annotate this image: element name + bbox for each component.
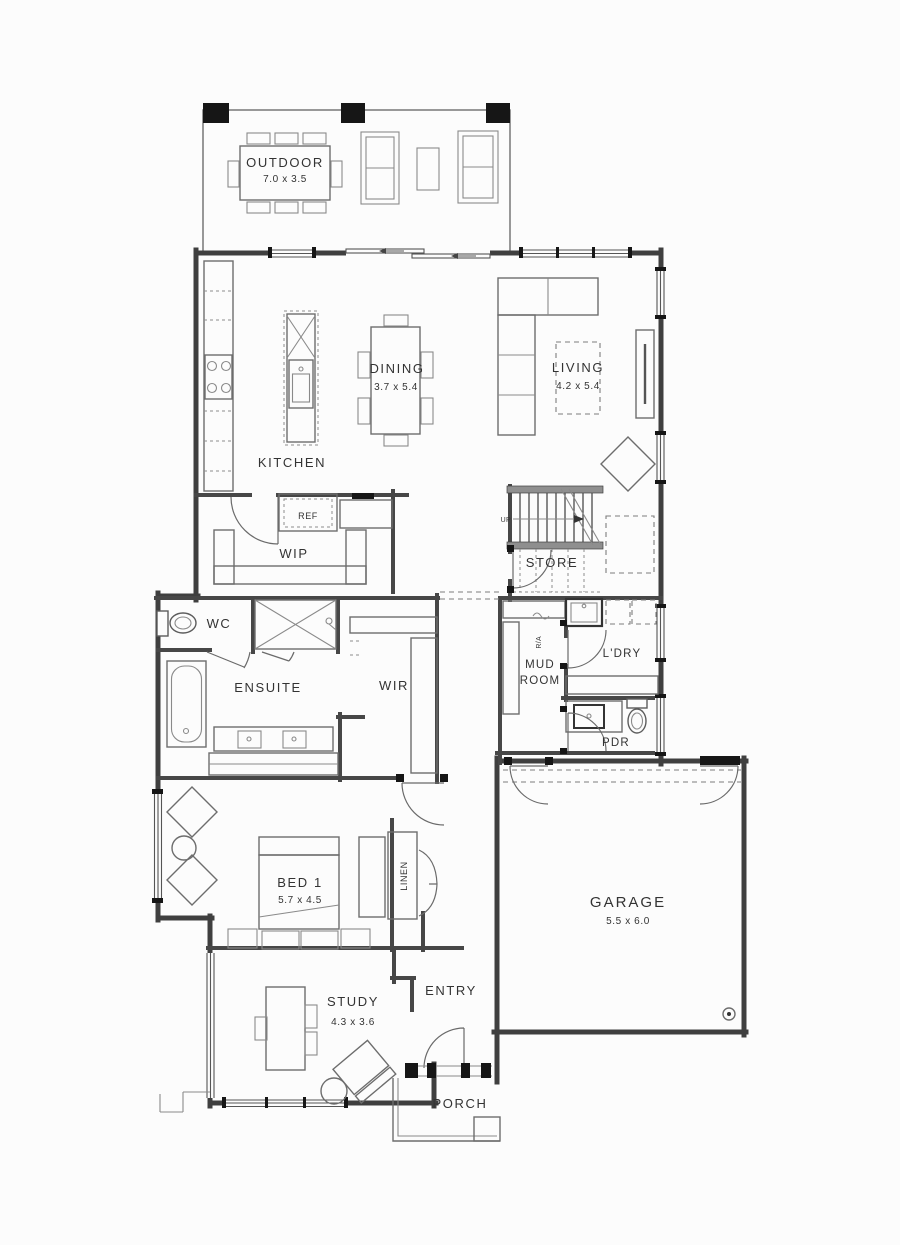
room-dims-living: 4.2 x 5.4 bbox=[556, 381, 600, 392]
wir-cabinet bbox=[411, 638, 437, 773]
label-up: UP bbox=[501, 517, 511, 524]
shower bbox=[255, 600, 336, 649]
laundry-appliance bbox=[606, 600, 630, 624]
porch-pier bbox=[474, 1117, 500, 1141]
hall-area: LINEN bbox=[359, 832, 437, 919]
entry-area: ENTRY bbox=[405, 983, 492, 1078]
occasional-chair bbox=[601, 437, 655, 491]
side-table bbox=[172, 836, 196, 860]
laundry-area: L'DRY bbox=[560, 599, 658, 694]
interior-walls bbox=[156, 486, 661, 1010]
window-bed1 bbox=[152, 789, 163, 903]
room-label-garage: GARAGE bbox=[590, 894, 666, 911]
toilet-cistern bbox=[157, 611, 168, 636]
wip-bench bbox=[214, 566, 366, 584]
bed bbox=[228, 837, 370, 949]
study-area: STUDY 4.3 x 3.6 bbox=[255, 987, 396, 1104]
bedside-table bbox=[341, 929, 370, 948]
study-desk bbox=[266, 987, 305, 1070]
garage-area: GARAGE 5.5 x 6.0 bbox=[503, 756, 741, 1020]
label-linen: LINEN bbox=[399, 861, 409, 891]
sectional-sofa bbox=[498, 278, 598, 435]
porch-post bbox=[481, 1063, 491, 1078]
kitchen-bench bbox=[204, 261, 233, 491]
mudroom-area: R/A MUD ROOM bbox=[503, 601, 565, 714]
room-label-room: ROOM bbox=[520, 675, 561, 687]
hall-bulkhead-opening bbox=[440, 592, 500, 599]
robe-cabinet-strip bbox=[209, 753, 338, 775]
bedroom-chair bbox=[167, 787, 217, 837]
porch-post bbox=[405, 1063, 418, 1078]
toilet-bowl bbox=[170, 613, 196, 633]
room-dims-study: 4.3 x 3.6 bbox=[331, 1017, 375, 1028]
room-label-wc: WC bbox=[207, 616, 232, 631]
kitchen-area: KITCHEN bbox=[204, 261, 326, 491]
window-top-living bbox=[519, 247, 632, 258]
stairs: UP bbox=[501, 486, 603, 549]
cooktop bbox=[205, 355, 232, 399]
window-laundry bbox=[655, 604, 666, 662]
landscape-steps bbox=[160, 1092, 210, 1112]
room-label-dining: DINING bbox=[369, 361, 424, 376]
outdoor-sofas bbox=[361, 131, 498, 204]
room-label-store: STORE bbox=[526, 555, 579, 570]
porch-post bbox=[427, 1063, 436, 1078]
wc-area: WC bbox=[157, 611, 250, 668]
study-armchair bbox=[333, 1040, 396, 1103]
linen-doors bbox=[419, 850, 437, 916]
hall-cabinet bbox=[359, 837, 385, 917]
room-label-wir: WIR bbox=[379, 678, 409, 693]
pdr-area: PDR bbox=[560, 699, 647, 754]
room-label-outdoor: OUTDOOR bbox=[246, 155, 324, 170]
room-dims-bed1: 5.7 x 4.5 bbox=[278, 895, 322, 906]
room-label-mud: MUD bbox=[525, 659, 555, 671]
room-label-study: STUDY bbox=[327, 994, 379, 1009]
dining-area: DINING 3.7 x 5.4 bbox=[358, 315, 433, 446]
wip-bench bbox=[214, 530, 234, 584]
floor-plan-svg: OUTDOOR 7.0 x 3.5 bbox=[0, 0, 900, 1245]
label-ra: R/A bbox=[536, 636, 543, 649]
wc-door bbox=[207, 652, 250, 668]
wip-area: REF WIP bbox=[214, 493, 392, 584]
wir-shelf bbox=[350, 617, 437, 633]
column bbox=[341, 103, 365, 123]
pdr-basin bbox=[574, 705, 604, 728]
wip-bench bbox=[346, 530, 366, 584]
room-dims-outdoor: 7.0 x 3.5 bbox=[263, 174, 307, 185]
room-label-wip: WIP bbox=[279, 546, 308, 561]
living-rug bbox=[556, 342, 600, 414]
porch-area: PORCH bbox=[393, 1078, 500, 1141]
laundry-appliance bbox=[632, 600, 656, 624]
window-pdr bbox=[655, 694, 666, 756]
dining-table bbox=[371, 327, 420, 434]
room-label-pdr: PDR bbox=[602, 737, 630, 749]
shower-head bbox=[326, 618, 332, 624]
pdr-toilet-cistern bbox=[627, 699, 647, 708]
sliding-door-top bbox=[346, 247, 490, 259]
room-label-entry: ENTRY bbox=[425, 983, 477, 998]
window-top-kitchen bbox=[268, 247, 316, 258]
laundry-bench bbox=[566, 676, 658, 694]
room-label-porch: PORCH bbox=[433, 1096, 488, 1111]
room-label-kitchen: KITCHEN bbox=[258, 455, 326, 470]
room-label-living: LIVING bbox=[552, 360, 604, 375]
stair-break-line bbox=[561, 489, 601, 545]
outdoor-table-setting bbox=[228, 133, 342, 213]
appliance-nook bbox=[340, 500, 392, 528]
column bbox=[203, 103, 229, 123]
tap bbox=[299, 367, 303, 371]
room-label-ensuite: ENSUITE bbox=[234, 680, 302, 695]
bath-drain bbox=[184, 729, 189, 734]
floor-plan-canvas: OUTDOOR 7.0 x 3.5 bbox=[0, 0, 900, 1245]
shower-door bbox=[262, 652, 294, 661]
wip-door bbox=[231, 497, 278, 544]
porch-post bbox=[461, 1063, 470, 1078]
garage-door-right bbox=[700, 766, 738, 804]
front-door bbox=[424, 1028, 464, 1068]
column bbox=[486, 103, 510, 123]
outdoor-area: OUTDOOR 7.0 x 3.5 bbox=[203, 103, 510, 252]
window-living-right-2 bbox=[655, 431, 666, 484]
mudroom-lockers bbox=[503, 622, 519, 714]
entry-sill bbox=[406, 1066, 492, 1076]
label-ref: REF bbox=[298, 511, 318, 521]
double-vanity bbox=[214, 727, 333, 751]
laundry-door bbox=[568, 630, 606, 668]
bathtub bbox=[167, 661, 206, 747]
bed1-door bbox=[402, 783, 444, 825]
window-study-left bbox=[205, 953, 216, 1098]
bedside-table bbox=[228, 929, 257, 948]
living-area: LIVING 4.2 x 5.4 bbox=[498, 278, 655, 491]
room-dims-dining: 3.7 x 5.4 bbox=[374, 382, 418, 393]
garage-ceiling-line bbox=[503, 770, 741, 782]
garage-door-left bbox=[510, 766, 548, 804]
window-living-right-1 bbox=[655, 267, 666, 319]
kitchen-island bbox=[284, 311, 318, 445]
room-label-bed1: BED 1 bbox=[277, 875, 323, 890]
tv-unit bbox=[636, 330, 654, 418]
understair-void bbox=[606, 516, 654, 573]
wir-area: WIR bbox=[350, 617, 437, 773]
room-dims-garage: 5.5 x 6.0 bbox=[606, 916, 650, 927]
bedroom-chair bbox=[167, 855, 217, 905]
room-label-ldry: L'DRY bbox=[603, 648, 642, 660]
